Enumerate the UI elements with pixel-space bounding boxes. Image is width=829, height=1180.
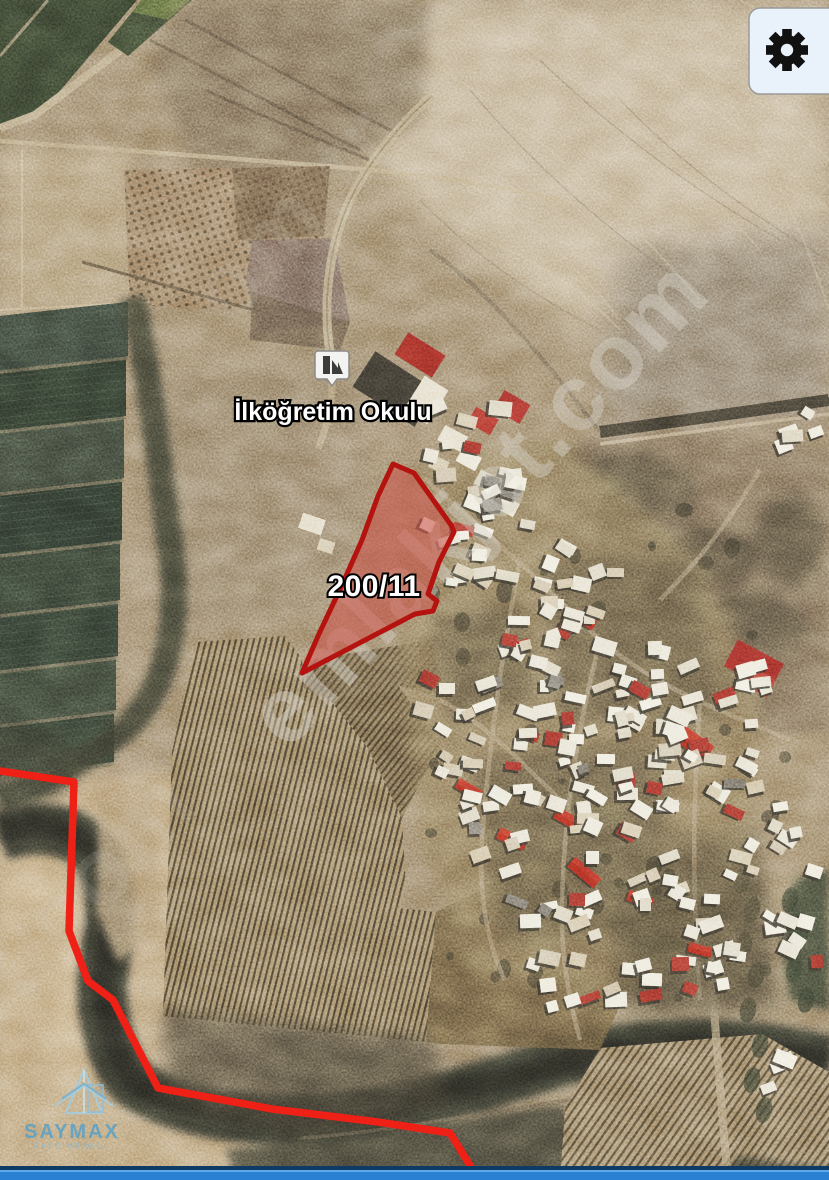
svg-text:200/11: 200/11	[327, 570, 420, 603]
svg-text:İlköğretim Okulu: İlköğretim Okulu	[234, 398, 431, 426]
svg-text:GAYRİMENKUL: GAYRİMENKUL	[33, 1141, 111, 1150]
svg-text:SAYMAX: SAYMAX	[24, 1121, 120, 1143]
